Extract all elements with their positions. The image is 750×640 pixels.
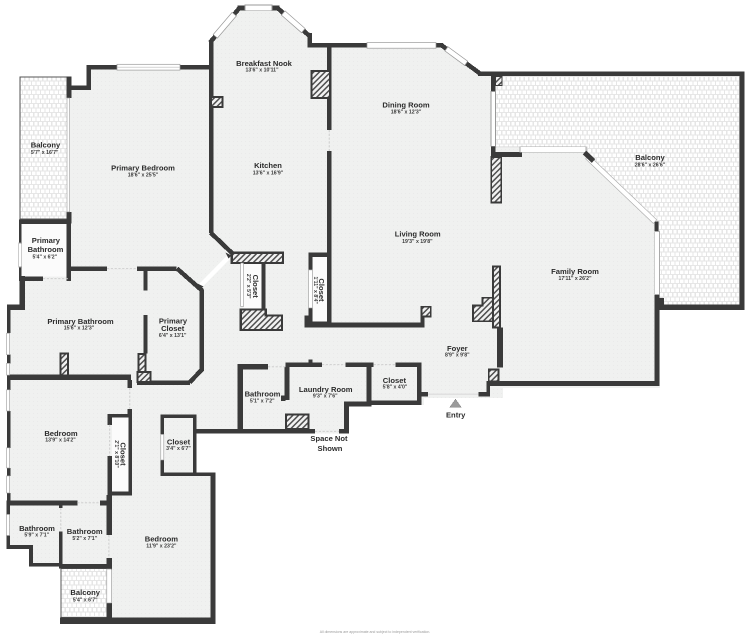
svg-text:6'4" x 13'1": 6'4" x 13'1": [159, 333, 187, 339]
svg-text:Balcony: Balcony: [70, 588, 100, 597]
svg-text:18'6" x 12'3": 18'6" x 12'3": [391, 110, 422, 116]
svg-text:17'11" x 26'2": 17'11" x 26'2": [558, 276, 592, 282]
svg-text:Living Room: Living Room: [395, 230, 441, 239]
svg-text:Balcony: Balcony: [31, 140, 61, 149]
svg-text:5'8" x 4'0": 5'8" x 4'0": [383, 385, 408, 391]
svg-text:Bedroom: Bedroom: [145, 534, 179, 543]
svg-text:Space Not: Space Not: [310, 434, 348, 443]
svg-text:Kitchen: Kitchen: [254, 161, 282, 170]
svg-text:1'11" x 8'4": 1'11" x 8'4": [312, 277, 318, 305]
svg-text:3'4" x 6'7": 3'4" x 6'7": [166, 446, 191, 452]
svg-text:5'4" x 6'7": 5'4" x 6'7": [73, 597, 98, 603]
svg-text:Bathroom: Bathroom: [67, 527, 103, 536]
svg-text:11'9" x 23'2": 11'9" x 23'2": [146, 544, 177, 550]
svg-text:5'4" x 6'2": 5'4" x 6'2": [32, 254, 57, 260]
svg-text:13'6" x 10'11": 13'6" x 10'11": [245, 68, 279, 74]
svg-text:Dining Room: Dining Room: [382, 100, 429, 109]
svg-text:All dimensions are approximate: All dimensions are approximate and subje…: [320, 630, 431, 634]
svg-text:18'6" x 25'5": 18'6" x 25'5": [128, 172, 159, 178]
svg-text:8'9" x 9'8": 8'9" x 9'8": [445, 352, 470, 358]
svg-text:Bathroom: Bathroom: [28, 245, 64, 254]
svg-text:5'9" x 7'1": 5'9" x 7'1": [24, 533, 49, 539]
svg-text:Bathroom: Bathroom: [245, 389, 281, 398]
svg-text:2'2" x 5'3": 2'2" x 5'3": [245, 274, 251, 299]
svg-text:Primary: Primary: [32, 236, 61, 245]
svg-text:Balcony: Balcony: [635, 153, 665, 162]
svg-text:13'9" x 14'2": 13'9" x 14'2": [45, 437, 76, 443]
svg-text:5'1" x 7'2": 5'1" x 7'2": [250, 398, 275, 404]
svg-text:19'3" x 19'8": 19'3" x 19'8": [402, 239, 433, 245]
svg-text:Closet: Closet: [161, 324, 185, 333]
svg-text:Family Room: Family Room: [551, 267, 599, 276]
svg-text:2'1" x 8'10": 2'1" x 8'10": [113, 440, 119, 468]
svg-text:9'3" x 7'6": 9'3" x 7'6": [313, 393, 338, 399]
svg-text:15'6" x 12'3": 15'6" x 12'3": [64, 325, 95, 331]
svg-text:Closet: Closet: [251, 275, 260, 299]
svg-text:13'6" x 16'9": 13'6" x 16'9": [253, 171, 284, 177]
svg-text:28'6" x 26'6": 28'6" x 26'6": [635, 162, 666, 168]
svg-text:Primary Bedroom: Primary Bedroom: [111, 163, 175, 172]
svg-text:5'7" x 16'7": 5'7" x 16'7": [31, 150, 59, 156]
svg-text:Breakfast Nook: Breakfast Nook: [236, 59, 292, 68]
svg-text:Entry: Entry: [446, 410, 466, 419]
svg-text:Closet: Closet: [119, 442, 128, 466]
svg-text:Shown: Shown: [318, 444, 343, 453]
svg-text:5'2" x 7'1": 5'2" x 7'1": [72, 536, 97, 542]
